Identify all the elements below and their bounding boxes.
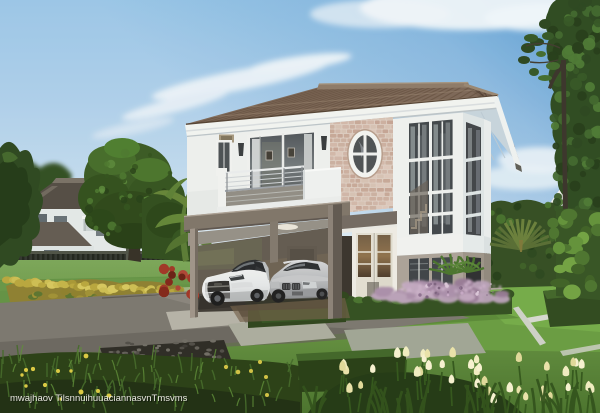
svg-text:mwajhaov Tilsnnuihuuaciannasvn: mwajhaov TilsnnuihuuaciannasvnTmsvms [10,393,188,404]
